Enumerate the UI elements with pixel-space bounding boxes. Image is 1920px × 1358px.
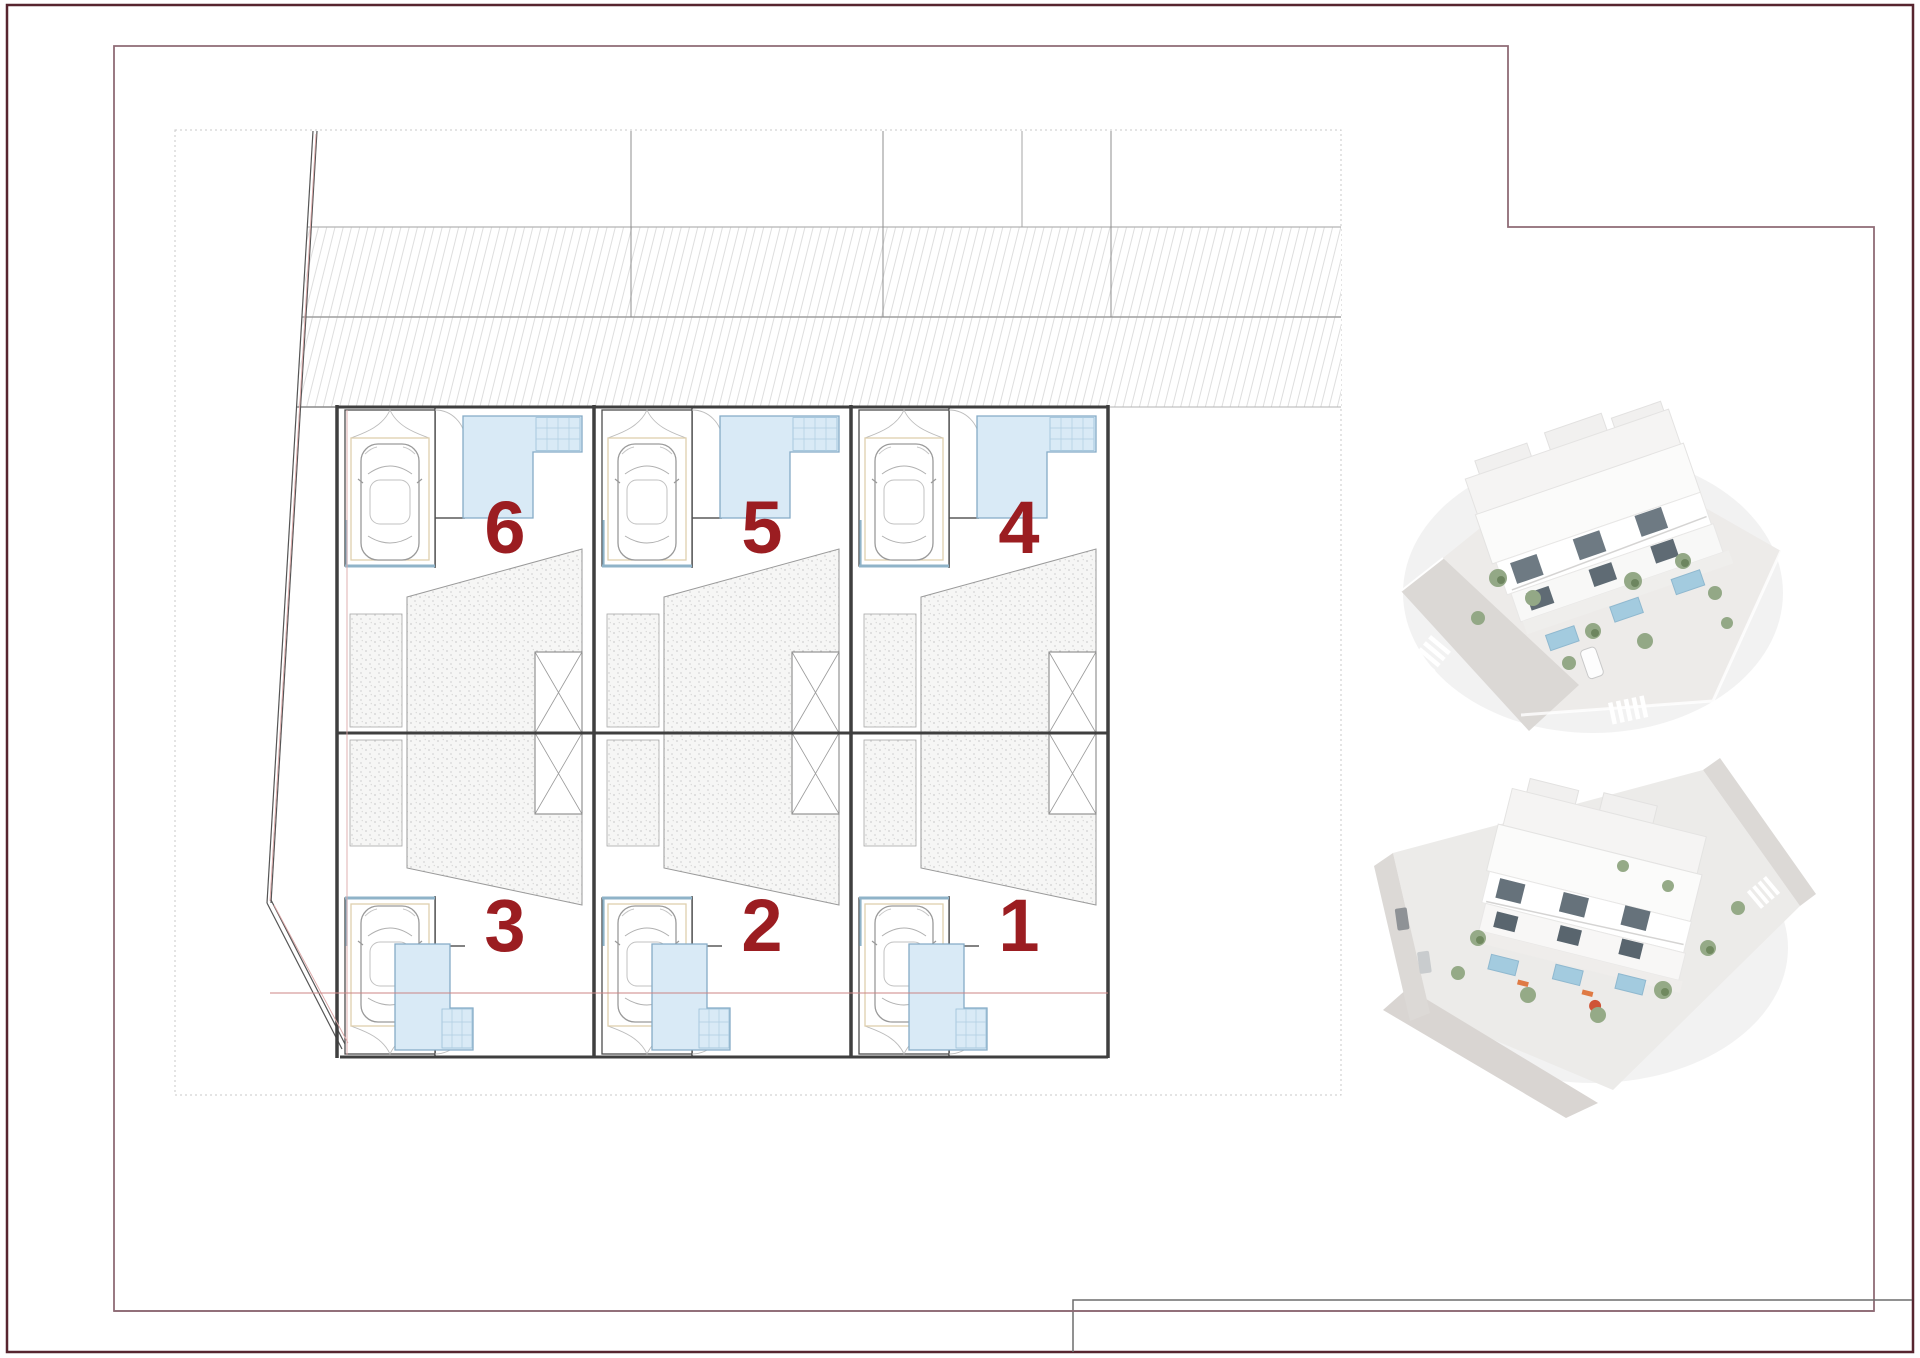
unit-number-6: 6 [484,486,525,569]
building-block [337,405,1108,1058]
sidewalk-hatch-band [303,227,1341,317]
unit-number-1: 1 [998,884,1039,967]
road-zone [296,131,1341,407]
road-hatch-band [298,317,1341,407]
site-plan-drawing: 6 5 4 3 2 1 [0,0,1920,1358]
render-top-image [1401,389,1783,733]
unit-number-3: 3 [484,884,525,967]
chamfer-corner [267,903,342,1049]
render-bottom-image [1374,758,1816,1118]
drawing-page: 6 5 4 3 2 1 [0,0,1920,1358]
title-block [114,1300,1912,1352]
unit-number-2: 2 [741,884,782,967]
unit-number-4: 4 [998,486,1039,569]
unit-number-5: 5 [741,486,782,569]
